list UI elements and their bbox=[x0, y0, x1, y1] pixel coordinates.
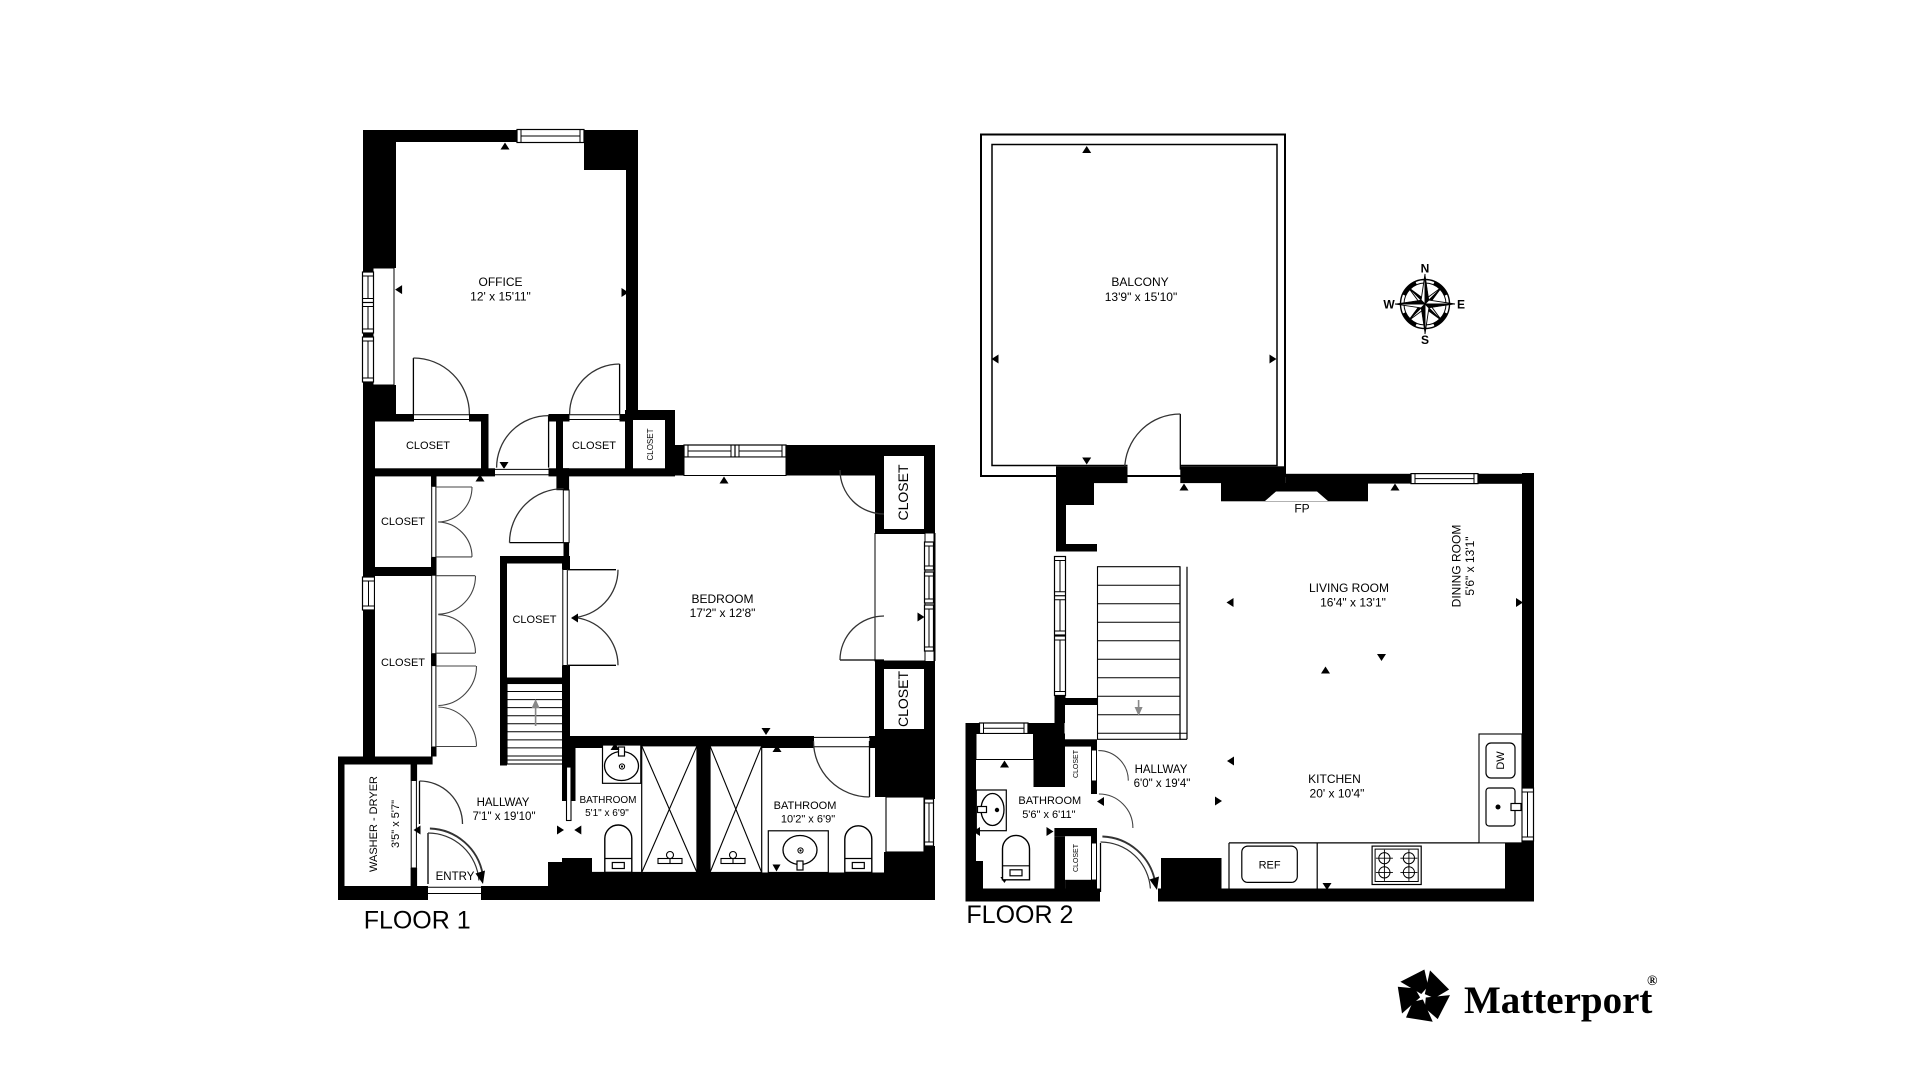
svg-text:®: ® bbox=[1647, 974, 1658, 989]
svg-text:N: N bbox=[1421, 262, 1430, 276]
svg-text:6'0" x 19'4": 6'0" x 19'4" bbox=[1134, 778, 1191, 790]
svg-text:10'2" x 6'9": 10'2" x 6'9" bbox=[781, 814, 835, 826]
svg-text:BATHROOM: BATHROOM bbox=[774, 800, 837, 812]
svg-text:BEDROOM: BEDROOM bbox=[691, 592, 753, 606]
svg-text:5'1" x 6'9": 5'1" x 6'9" bbox=[585, 808, 629, 819]
svg-text:CLOSET: CLOSET bbox=[512, 614, 556, 626]
svg-text:BALCONY: BALCONY bbox=[1111, 275, 1168, 289]
svg-text:OFFICE: OFFICE bbox=[479, 275, 523, 289]
svg-text:20' x 10'4": 20' x 10'4" bbox=[1310, 787, 1365, 801]
svg-text:CLOSET: CLOSET bbox=[381, 657, 425, 669]
svg-text:S: S bbox=[1421, 333, 1429, 347]
svg-text:DINING ROOM: DINING ROOM bbox=[1450, 525, 1464, 608]
svg-text:12' x 15'11": 12' x 15'11" bbox=[470, 290, 531, 304]
svg-text:W: W bbox=[1383, 298, 1395, 312]
svg-text:DW: DW bbox=[1495, 751, 1507, 770]
svg-text:13'9" x 15'10": 13'9" x 15'10" bbox=[1105, 290, 1178, 304]
svg-text:7'1" x 19'10": 7'1" x 19'10" bbox=[472, 811, 535, 823]
svg-text:KITCHEN: KITCHEN bbox=[1308, 772, 1361, 786]
svg-text:E: E bbox=[1457, 298, 1465, 312]
svg-text:FLOOR 1: FLOOR 1 bbox=[364, 907, 471, 935]
svg-text:FLOOR 2: FLOOR 2 bbox=[966, 901, 1073, 929]
svg-text:CLOSET: CLOSET bbox=[895, 464, 911, 520]
svg-text:WASHER - DRYER: WASHER - DRYER bbox=[368, 776, 380, 872]
svg-text:CLOSET: CLOSET bbox=[1073, 843, 1080, 872]
svg-text:16'4" x 13'1": 16'4" x 13'1" bbox=[1320, 596, 1386, 610]
svg-text:17'2" x 12'8": 17'2" x 12'8" bbox=[690, 606, 756, 620]
svg-text:CLOSET: CLOSET bbox=[1073, 749, 1080, 778]
svg-text:REF: REF bbox=[1259, 860, 1281, 872]
svg-text:CLOSET: CLOSET bbox=[646, 428, 655, 460]
svg-text:BATHROOM: BATHROOM bbox=[1018, 795, 1081, 807]
svg-text:5'6" x 13'1": 5'6" x 13'1" bbox=[1463, 536, 1477, 595]
svg-text:3'5" x 5'7": 3'5" x 5'7" bbox=[390, 800, 402, 848]
svg-text:5'6" x 6'11": 5'6" x 6'11" bbox=[1022, 809, 1075, 821]
svg-text:HALLWAY: HALLWAY bbox=[477, 797, 530, 809]
svg-text:CLOSET: CLOSET bbox=[572, 440, 616, 452]
svg-text:HALLWAY: HALLWAY bbox=[1135, 764, 1188, 776]
svg-text:CLOSET: CLOSET bbox=[381, 516, 425, 528]
svg-text:ENTRY: ENTRY bbox=[436, 871, 475, 883]
svg-text:FP: FP bbox=[1294, 502, 1309, 516]
svg-text:BATHROOM: BATHROOM bbox=[579, 795, 636, 806]
svg-text:CLOSET: CLOSET bbox=[406, 440, 450, 452]
svg-text:LIVING ROOM: LIVING ROOM bbox=[1309, 581, 1389, 595]
svg-text:CLOSET: CLOSET bbox=[895, 671, 911, 727]
svg-text:Matterport: Matterport bbox=[1464, 979, 1652, 1022]
